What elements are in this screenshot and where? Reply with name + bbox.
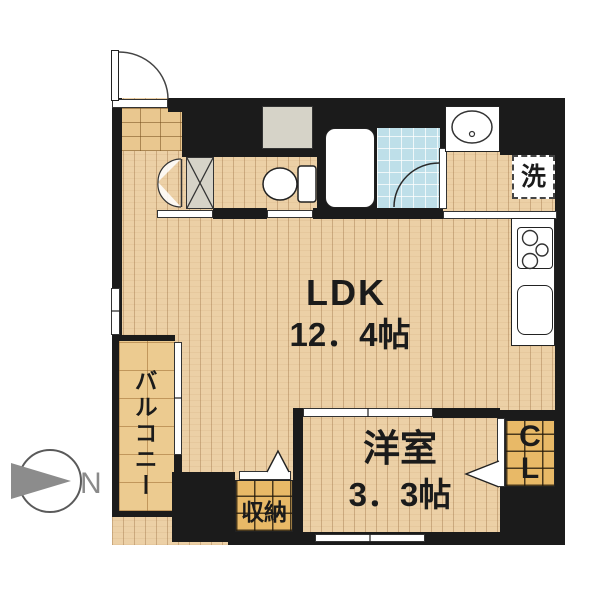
wall: [182, 107, 262, 157]
balcony-wall: [112, 335, 175, 341]
entrance-tile-floor: [120, 107, 182, 151]
closet-label-line1: C: [508, 421, 552, 453]
kitchen-sink: [517, 285, 553, 335]
balcony-wall: [112, 335, 119, 517]
bathroom-door-leaf: [439, 148, 447, 209]
closet-door: [497, 418, 505, 487]
bathroom-floor: [377, 127, 440, 209]
western-room-label: 洋室: [340, 430, 460, 469]
entrance-door-arc: [119, 52, 168, 99]
sliding-door: [303, 408, 433, 417]
wall: [172, 472, 235, 542]
wall: [500, 410, 555, 420]
compass-north-label: N: [80, 467, 102, 500]
compass-needle: [11, 463, 71, 499]
counter-box: [262, 106, 313, 149]
balcony-label: バルコニー: [132, 354, 156, 514]
storage-label: 収納: [233, 500, 295, 524]
wall: [262, 148, 313, 157]
entrance-door-leaf: [111, 50, 119, 101]
storage-door: [239, 471, 291, 480]
wall: [377, 98, 448, 128]
wall: [293, 408, 303, 545]
closet-label-line2: L: [508, 453, 552, 485]
toilet-door: [267, 210, 313, 218]
ldk-label: LDK: [276, 274, 416, 312]
western-room-size-label: 3．3帖: [325, 478, 475, 513]
balcony-window: [174, 342, 182, 455]
wall: [213, 208, 267, 219]
washbasin-counter: [445, 106, 500, 152]
compass-circle: [19, 450, 81, 512]
closet-label: C L: [508, 421, 552, 485]
wall: [555, 98, 565, 545]
ldk-left-window: [111, 288, 120, 335]
kitchen-stove: [517, 227, 553, 269]
hall-opening: [157, 210, 213, 218]
bathtub: [325, 128, 375, 208]
entrance-threshold: [112, 99, 168, 108]
washer-label: 洗: [521, 164, 546, 190]
bottom-window: [315, 534, 425, 542]
floor-plan: 洗 N: [0, 0, 600, 600]
ldk-size-label: 12．4帖: [255, 318, 445, 353]
wall: [313, 208, 443, 219]
shaft-box: [186, 157, 214, 209]
wall: [433, 408, 500, 418]
washing-machine-space: 洗: [512, 155, 555, 199]
